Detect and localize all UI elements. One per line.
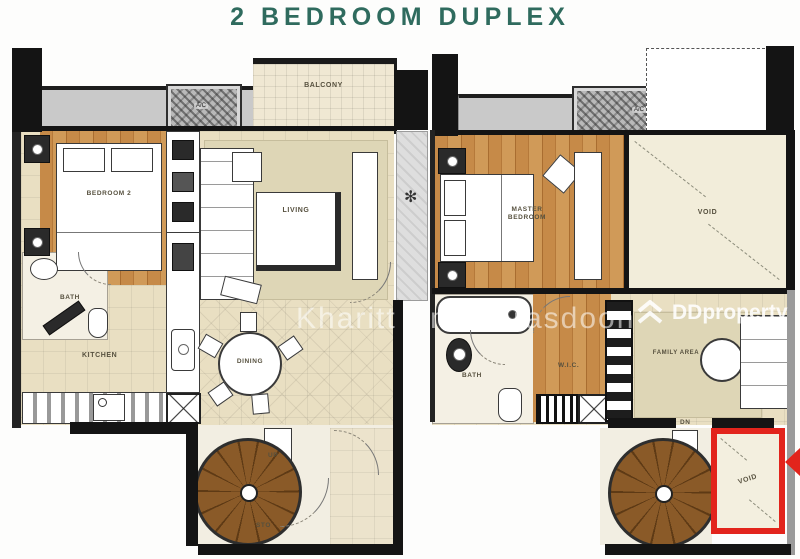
- wall-left: [430, 130, 435, 422]
- wall-block: [12, 48, 42, 132]
- open-above-area: [646, 48, 765, 131]
- bath2-label: BATH: [462, 372, 482, 380]
- family-area-label: FAMILY AREA: [650, 350, 702, 358]
- desk-icon: [574, 152, 602, 280]
- wall-segment: [712, 418, 774, 428]
- watermark-text: m marasdoon: [430, 302, 635, 336]
- fridge-icon: [171, 329, 195, 371]
- wall-bottom-left: [70, 422, 198, 434]
- wic-label: W.I.C.: [558, 362, 579, 370]
- basin-icon: [453, 348, 466, 361]
- kitchen-label: KITCHEN: [82, 352, 117, 361]
- stair-down-label: DN: [680, 419, 691, 427]
- bath1-label: BATH: [60, 294, 80, 302]
- wall-divider: [624, 133, 629, 290]
- wall-right: [786, 130, 795, 290]
- wall-right-gray: [787, 290, 795, 555]
- round-table-icon: [700, 338, 744, 382]
- sink-icon: [446, 338, 472, 372]
- oven-icon: [172, 243, 194, 271]
- lamp-icon: [447, 156, 458, 167]
- storage-label: STO: [256, 522, 271, 530]
- side-table-icon: [232, 152, 262, 182]
- lamp-icon: [447, 270, 458, 281]
- dining-label: DINING: [220, 358, 280, 366]
- pillow-icon: [444, 180, 466, 216]
- fridge-handle-icon: [178, 344, 189, 355]
- stove-icon: [93, 394, 125, 421]
- closet-icon: [24, 135, 50, 163]
- tv-cabinet-icon: [352, 152, 378, 280]
- balcony: BALCONY: [253, 58, 397, 134]
- bedroom2-label: BEDROOM 2: [57, 190, 161, 198]
- nightstand-icon: [438, 262, 466, 288]
- void-diagonal: [708, 224, 780, 280]
- pillow-icon: [444, 220, 466, 256]
- chair-icon: [240, 312, 257, 332]
- wall-left: [12, 132, 21, 428]
- wall-mid: [432, 288, 788, 294]
- living-label: LIVING: [257, 207, 335, 216]
- void-diagonal: [720, 438, 747, 461]
- wall-right: [393, 300, 403, 546]
- pillow-icon: [63, 148, 105, 172]
- stair-up-label: UP: [268, 452, 278, 460]
- appliance-icon: [172, 202, 194, 222]
- side-ledge: ✻: [396, 131, 428, 301]
- wall-block: [766, 46, 794, 130]
- void-highlight-label: VOID: [717, 467, 779, 494]
- void-upper-label: VOID: [629, 209, 786, 218]
- wall-block: [394, 70, 428, 130]
- void-upper-area: VOID: [629, 135, 786, 288]
- kitchen-counter-side: [166, 232, 200, 394]
- ddproperty-watermark: DDproperty: [634, 297, 788, 329]
- closet-knob-icon: [32, 144, 43, 155]
- sink-icon: [30, 258, 58, 280]
- plan-title: 2 BEDROOM DUPLEX: [0, 3, 800, 32]
- pillow-icon: [111, 148, 153, 172]
- red-arrow-icon: [785, 448, 800, 476]
- toilet-icon: [88, 308, 108, 338]
- sink-x-icon: [166, 393, 201, 424]
- wall-bottom: [605, 544, 791, 555]
- void-diagonal: [749, 499, 776, 522]
- blanket-line: [57, 232, 161, 233]
- ddproperty-brand-text: DDproperty: [672, 301, 788, 325]
- watermark-text: Kharitt: [296, 302, 397, 336]
- spiral-staircase-icon: [608, 438, 718, 548]
- coffee-table-icon: LIVING: [256, 192, 341, 271]
- master-bedroom-label: MASTER BEDROOM: [496, 206, 558, 222]
- wall-top: [22, 126, 394, 131]
- wall-vertical: [186, 422, 198, 546]
- wall-bottom: [198, 544, 403, 555]
- appliance-icon: [172, 172, 194, 192]
- closet-icon: [24, 228, 50, 256]
- kitchen-counter-top: [166, 131, 200, 233]
- cooktop-icon: [172, 140, 194, 160]
- void-diagonal: [634, 141, 706, 197]
- wall-block: [432, 54, 458, 136]
- toilet-icon: [498, 388, 522, 422]
- ddproperty-logo-icon: [634, 297, 666, 329]
- red-highlight-box: VOID: [711, 428, 785, 534]
- wall-segment: [608, 418, 676, 428]
- chair-icon: [251, 393, 270, 414]
- burner-icon: [98, 398, 107, 407]
- closet-knob-icon: [32, 237, 43, 248]
- wall-top: [432, 130, 794, 135]
- ac-label: A/C: [194, 103, 208, 109]
- floorplan-image: 2 BEDROOM DUPLEX A/C BALCONY BEDROOM 2: [0, 0, 800, 559]
- kitchen-counter-bottom: [22, 392, 200, 424]
- balcony-label: BALCONY: [253, 82, 394, 91]
- sofa-icon: [740, 315, 790, 409]
- ac-label: A/C: [632, 107, 646, 113]
- shoe-rack-icon: [536, 394, 578, 424]
- plant-icon: ✻: [404, 187, 417, 207]
- nightstand-icon: [438, 148, 466, 174]
